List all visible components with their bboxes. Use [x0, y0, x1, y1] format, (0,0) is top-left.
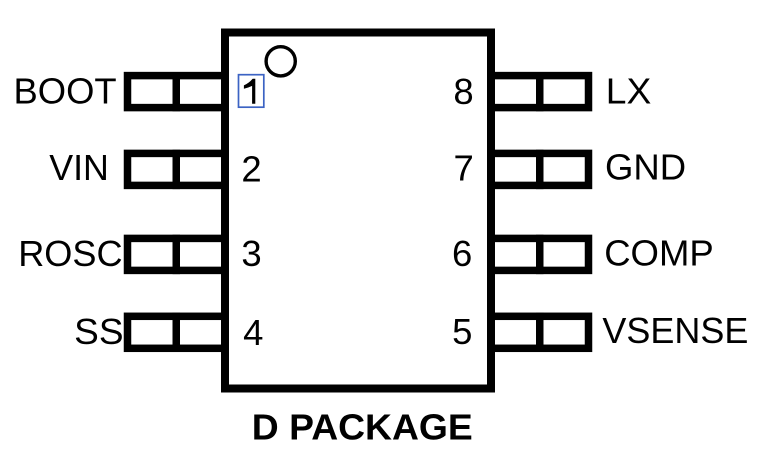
- svg-text:3: 3: [241, 233, 261, 274]
- svg-text:COMP: COMP: [604, 232, 714, 273]
- svg-text:LX: LX: [606, 71, 652, 112]
- svg-text:5: 5: [452, 311, 472, 352]
- svg-text:SS: SS: [74, 311, 123, 352]
- svg-text:VSENSE: VSENSE: [602, 310, 748, 351]
- svg-text:4: 4: [243, 312, 263, 353]
- svg-text:GND: GND: [605, 146, 686, 187]
- svg-text:D PACKAGE: D PACKAGE: [252, 406, 473, 447]
- svg-text:8: 8: [453, 71, 473, 112]
- svg-text:BOOT: BOOT: [14, 71, 117, 112]
- svg-text:ROSC: ROSC: [18, 233, 122, 274]
- svg-text:6: 6: [452, 233, 472, 274]
- svg-text:7: 7: [454, 147, 474, 188]
- svg-text:VIN: VIN: [49, 147, 109, 188]
- svg-text:2: 2: [241, 149, 261, 190]
